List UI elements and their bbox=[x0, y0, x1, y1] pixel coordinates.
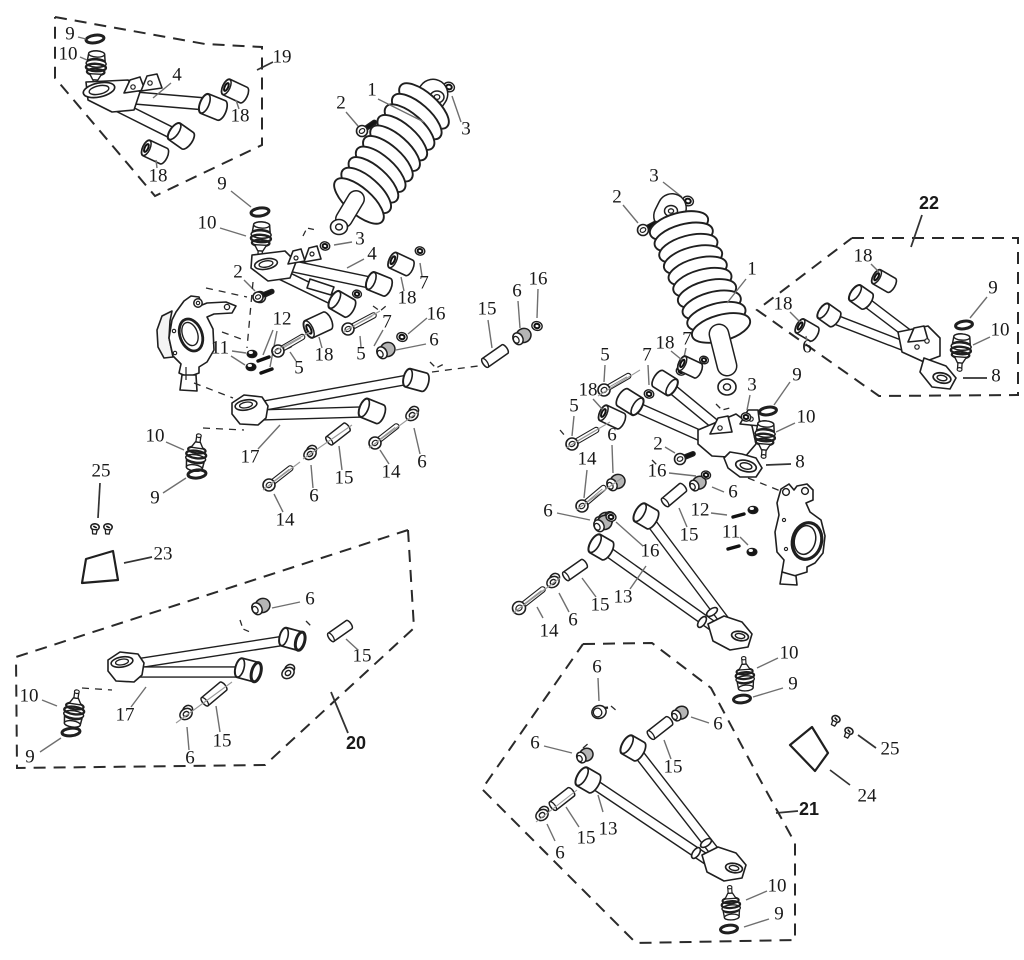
svg-text:14: 14 bbox=[276, 509, 296, 530]
svg-text:10: 10 bbox=[780, 642, 799, 663]
svg-text:12: 12 bbox=[691, 499, 710, 520]
svg-text:3: 3 bbox=[461, 118, 471, 139]
svg-text:2: 2 bbox=[653, 433, 663, 454]
svg-text:25: 25 bbox=[881, 738, 900, 759]
svg-text:16: 16 bbox=[641, 540, 660, 561]
svg-text:2: 2 bbox=[336, 92, 346, 113]
svg-text:4: 4 bbox=[367, 243, 377, 264]
svg-text:6: 6 bbox=[607, 424, 617, 445]
svg-text:16: 16 bbox=[529, 268, 548, 289]
svg-text:1: 1 bbox=[367, 79, 377, 100]
svg-text:6: 6 bbox=[530, 732, 540, 753]
svg-text:10: 10 bbox=[20, 685, 39, 706]
svg-text:15: 15 bbox=[213, 730, 232, 751]
svg-text:6: 6 bbox=[713, 713, 723, 734]
svg-text:8: 8 bbox=[795, 451, 805, 472]
svg-text:6: 6 bbox=[568, 609, 578, 630]
svg-text:7: 7 bbox=[382, 311, 392, 332]
svg-text:12: 12 bbox=[273, 308, 292, 329]
svg-text:15: 15 bbox=[680, 524, 699, 545]
svg-text:9: 9 bbox=[792, 364, 802, 385]
svg-text:4: 4 bbox=[172, 64, 182, 85]
svg-text:15: 15 bbox=[577, 827, 596, 848]
svg-text:14: 14 bbox=[540, 620, 560, 641]
svg-text:22: 22 bbox=[919, 193, 939, 213]
svg-text:7: 7 bbox=[682, 328, 692, 349]
svg-text:18: 18 bbox=[854, 245, 873, 266]
svg-text:10: 10 bbox=[797, 406, 816, 427]
svg-text:21: 21 bbox=[799, 799, 819, 819]
svg-text:23: 23 bbox=[154, 543, 173, 564]
svg-text:17: 17 bbox=[241, 446, 260, 467]
svg-text:6: 6 bbox=[512, 280, 522, 301]
svg-text:10: 10 bbox=[768, 875, 787, 896]
svg-text:15: 15 bbox=[335, 467, 354, 488]
svg-text:3: 3 bbox=[747, 374, 757, 395]
svg-text:16: 16 bbox=[648, 460, 667, 481]
svg-text:10: 10 bbox=[198, 212, 217, 233]
svg-text:6: 6 bbox=[309, 485, 319, 506]
svg-text:25: 25 bbox=[92, 460, 111, 481]
svg-text:10: 10 bbox=[146, 425, 165, 446]
svg-text:9: 9 bbox=[150, 487, 160, 508]
svg-text:10: 10 bbox=[991, 319, 1010, 340]
svg-text:18: 18 bbox=[315, 344, 334, 365]
svg-text:9: 9 bbox=[25, 746, 35, 767]
svg-text:15: 15 bbox=[664, 756, 683, 777]
svg-text:9: 9 bbox=[774, 903, 784, 924]
svg-text:6: 6 bbox=[592, 656, 602, 677]
svg-text:6: 6 bbox=[417, 451, 427, 472]
svg-text:9: 9 bbox=[217, 173, 227, 194]
svg-text:9: 9 bbox=[988, 277, 998, 298]
svg-text:9: 9 bbox=[788, 673, 798, 694]
svg-text:18: 18 bbox=[398, 287, 417, 308]
svg-text:9: 9 bbox=[65, 23, 75, 44]
svg-text:10: 10 bbox=[59, 43, 78, 64]
svg-text:3: 3 bbox=[649, 165, 659, 186]
svg-text:11: 11 bbox=[211, 337, 229, 358]
svg-text:3: 3 bbox=[355, 228, 365, 249]
svg-text:24: 24 bbox=[858, 785, 878, 806]
svg-text:5: 5 bbox=[569, 395, 579, 416]
svg-text:11: 11 bbox=[722, 521, 740, 542]
svg-text:20: 20 bbox=[346, 733, 366, 753]
svg-text:2: 2 bbox=[233, 261, 243, 282]
svg-text:13: 13 bbox=[614, 586, 633, 607]
svg-text:17: 17 bbox=[116, 704, 135, 725]
svg-text:7: 7 bbox=[419, 272, 429, 293]
svg-text:8: 8 bbox=[991, 365, 1001, 386]
svg-text:7: 7 bbox=[642, 344, 652, 365]
svg-text:5: 5 bbox=[600, 344, 610, 365]
svg-text:18: 18 bbox=[579, 379, 598, 400]
svg-text:15: 15 bbox=[478, 298, 497, 319]
svg-text:14: 14 bbox=[578, 448, 598, 469]
svg-text:6: 6 bbox=[728, 481, 738, 502]
svg-text:18: 18 bbox=[149, 165, 168, 186]
svg-text:6: 6 bbox=[555, 842, 565, 863]
svg-text:18: 18 bbox=[656, 332, 675, 353]
svg-text:6: 6 bbox=[429, 329, 439, 350]
svg-text:13: 13 bbox=[599, 818, 618, 839]
svg-text:2: 2 bbox=[612, 186, 622, 207]
svg-text:16: 16 bbox=[427, 303, 446, 324]
svg-text:14: 14 bbox=[382, 461, 402, 482]
svg-text:18: 18 bbox=[774, 293, 793, 314]
svg-text:18: 18 bbox=[231, 105, 250, 126]
svg-text:1: 1 bbox=[747, 258, 757, 279]
svg-text:19: 19 bbox=[273, 46, 292, 67]
svg-text:6: 6 bbox=[543, 500, 553, 521]
svg-text:6: 6 bbox=[185, 747, 195, 768]
svg-text:6: 6 bbox=[305, 588, 315, 609]
svg-text:15: 15 bbox=[591, 594, 610, 615]
